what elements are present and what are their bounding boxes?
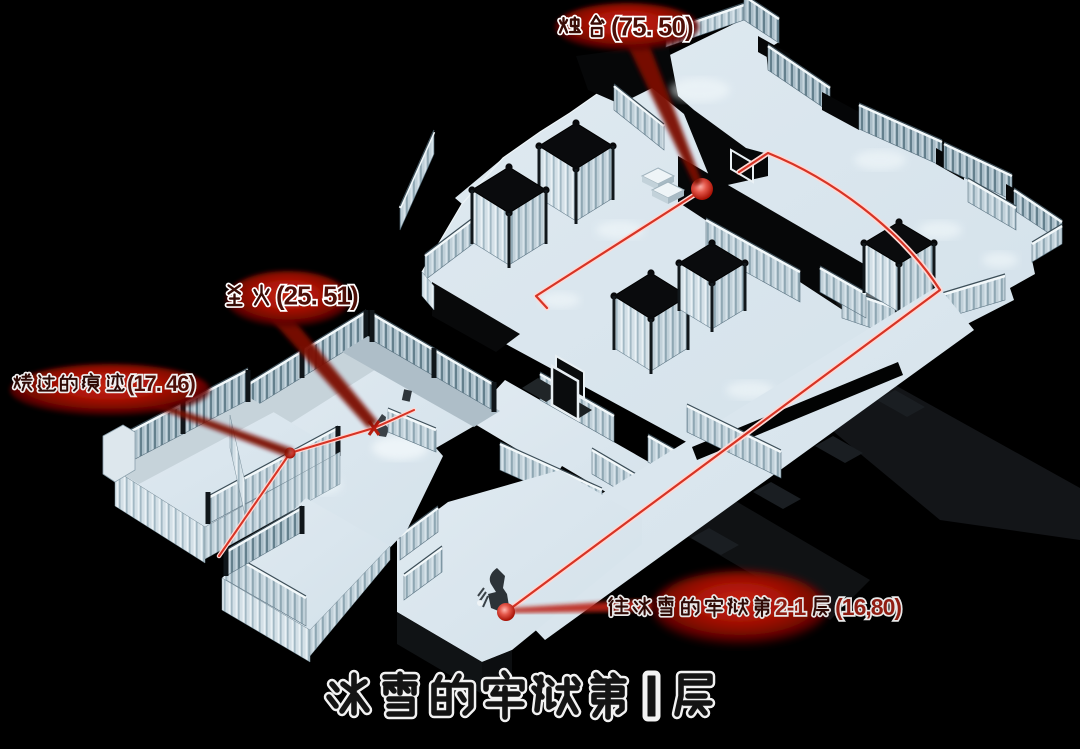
svg-text:(25. 51): (25. 51)	[276, 281, 358, 311]
svg-text:(75. 50): (75. 50)	[611, 12, 693, 42]
svg-text:2-1: 2-1	[775, 594, 806, 620]
svg-text:(17. 46): (17. 46)	[127, 371, 195, 396]
svg-text:(16,80): (16,80)	[835, 594, 901, 620]
